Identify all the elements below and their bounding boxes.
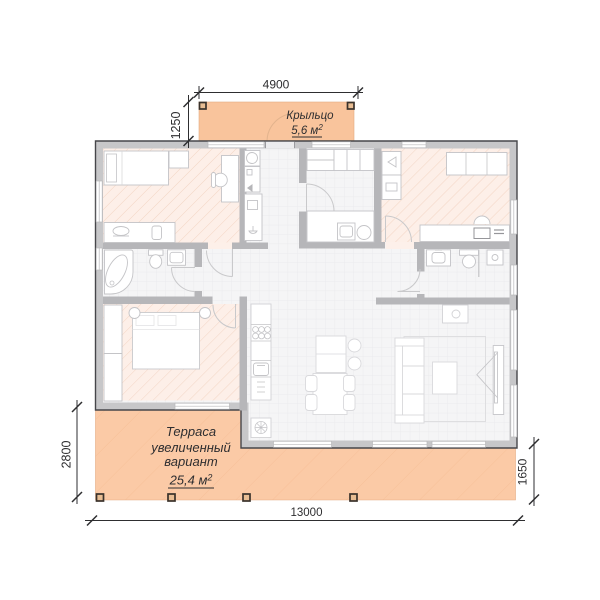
svg-text:Крыльцо: Крыльцо xyxy=(286,110,334,122)
svg-text:увеличенный: увеличенный xyxy=(150,440,230,455)
svg-text:4900: 4900 xyxy=(263,78,290,92)
svg-text:25,4 м2: 25,4 м2 xyxy=(169,473,213,488)
svg-text:вариант: вариант xyxy=(164,454,218,469)
svg-text:2800: 2800 xyxy=(60,441,74,469)
svg-text:1250: 1250 xyxy=(169,112,183,140)
svg-text:1650: 1650 xyxy=(516,458,530,485)
svg-text:Терраса: Терраса xyxy=(166,424,216,439)
svg-text:13000: 13000 xyxy=(291,507,323,519)
